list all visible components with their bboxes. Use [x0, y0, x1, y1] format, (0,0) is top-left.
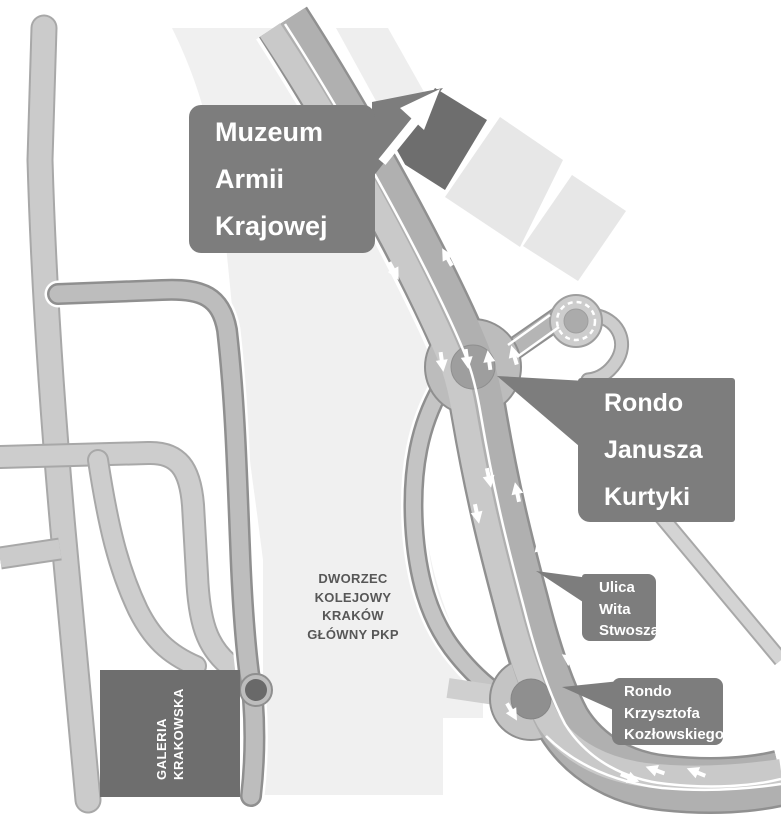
- road-west-vertical: [40, 28, 88, 800]
- map-canvas: Muzeum Armii Krajowej Rondo Janusza Kurt…: [0, 0, 781, 839]
- station-name-label: DWORZEC KOLEJOWY KRAKÓW GŁÓWNY PKP: [270, 570, 436, 644]
- galeria-junction-dot: [245, 679, 267, 701]
- callout-muzeum-armii-krajowej: Muzeum Armii Krajowej: [189, 105, 375, 253]
- callout-ulica-wita-stwosza: Ulica Wita Stwosza: [582, 574, 656, 641]
- callout-rondo-kozlowskiego: Rondo Krzysztofa Kozłowskiego: [612, 678, 723, 745]
- road-west-stub: [0, 549, 60, 558]
- roundabout-kozlowski-center: [511, 679, 551, 719]
- galeria-krakowska-label: GALERIA KRAKOWSKA: [153, 688, 187, 780]
- galeria-krakowska-building: GALERIA KRAKOWSKA: [100, 670, 240, 797]
- callout-rondo-janusza-kurtyki: Rondo Janusza Kurtyki: [578, 378, 735, 522]
- roundabout-small-center: [564, 309, 588, 333]
